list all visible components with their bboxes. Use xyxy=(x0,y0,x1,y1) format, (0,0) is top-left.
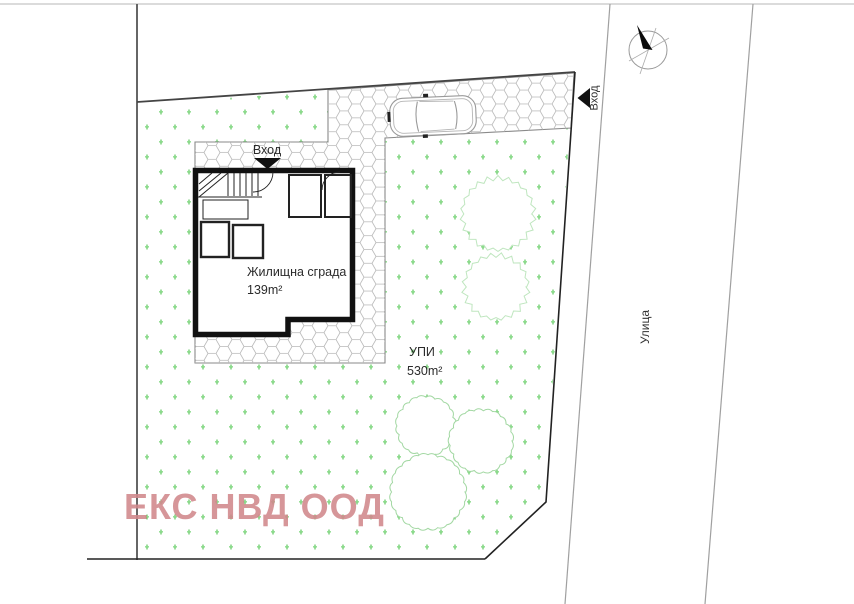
building-name-label: Жилищна сграда xyxy=(247,265,346,279)
street-entrance: Вход xyxy=(578,85,601,110)
building-entrance-label: Вход xyxy=(253,143,282,157)
bush xyxy=(396,396,457,457)
street-label: Улица xyxy=(638,310,652,344)
car-mirror-top xyxy=(423,94,428,98)
building: Жилищна сграда 139m² xyxy=(196,171,353,335)
plot-area-label: 530m² xyxy=(407,364,442,378)
plot-name-label: УПИ xyxy=(409,345,435,359)
street-east-edge xyxy=(705,4,753,604)
car-front-marker xyxy=(387,112,390,122)
north-arrow-icon xyxy=(629,25,669,74)
building-outline xyxy=(196,171,353,335)
building-area-label: 139m² xyxy=(247,283,282,297)
site-plan: Улица xyxy=(0,0,854,604)
site-plan-drawing: Улица xyxy=(0,0,854,604)
car-mirror-bottom xyxy=(423,134,428,138)
car xyxy=(387,92,477,140)
street-entrance-label: Вход xyxy=(589,85,601,110)
watermark: ЕКС НВД ООД xyxy=(124,486,385,527)
tree xyxy=(462,253,530,320)
